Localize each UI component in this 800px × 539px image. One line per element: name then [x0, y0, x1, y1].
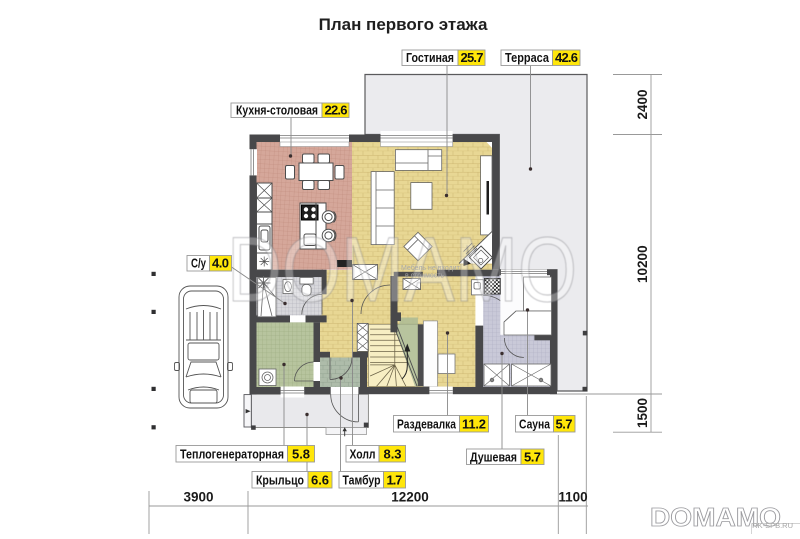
svg-text:42.6: 42.6 [555, 50, 578, 65]
svg-text:6.6: 6.6 [311, 473, 329, 488]
svg-text:в стоимость: в стоимость [405, 273, 445, 280]
svg-text:25.7: 25.7 [461, 50, 484, 65]
svg-text:1100: 1100 [558, 490, 587, 505]
svg-text:4.0: 4.0 [212, 256, 229, 271]
svg-text:5.7: 5.7 [524, 450, 541, 465]
svg-text:10200: 10200 [635, 245, 650, 283]
svg-text:5.7: 5.7 [556, 417, 573, 432]
svg-text:С/у: С/у [191, 256, 207, 271]
svg-text:12200: 12200 [391, 490, 429, 505]
svg-text:Кухня-столовая: Кухня-столовая [236, 103, 318, 118]
svg-text:Раздевалка: Раздевалка [397, 417, 457, 432]
svg-text:2400: 2400 [635, 89, 650, 119]
svg-text:Тамбур: Тамбур [343, 473, 381, 488]
svg-text:План первого этажа: План первого этажа [319, 15, 488, 34]
svg-text:Гостиная: Гостиная [406, 50, 454, 65]
svg-text:Теплогенераторная: Теплогенераторная [180, 447, 284, 462]
svg-text:Сауна: Сауна [519, 417, 551, 432]
svg-text:Мебель не входит: Мебель не входит [401, 264, 461, 272]
svg-text:11.2: 11.2 [462, 417, 486, 432]
svg-text:RK-SPB.RU: RK-SPB.RU [752, 521, 793, 530]
svg-text:Крыльцо: Крыльцо [256, 473, 304, 488]
svg-text:3900: 3900 [183, 490, 213, 505]
svg-text:1.7: 1.7 [387, 473, 403, 488]
svg-text:Душевая: Душевая [470, 450, 517, 465]
svg-text:22.6: 22.6 [325, 103, 348, 118]
svg-text:8.3: 8.3 [384, 447, 402, 462]
svg-text:1500: 1500 [635, 398, 650, 428]
svg-text:Холл: Холл [350, 447, 376, 462]
svg-text:Терраса: Терраса [505, 50, 550, 65]
svg-text:5.8: 5.8 [292, 447, 310, 462]
